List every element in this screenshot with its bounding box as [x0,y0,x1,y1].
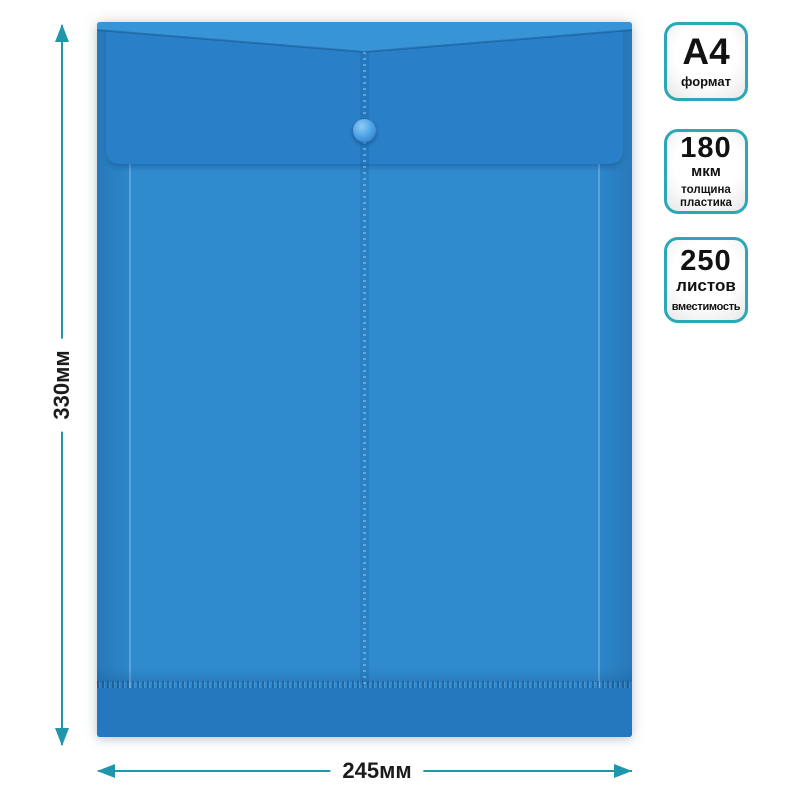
height-arrow-up-icon [55,24,69,42]
vertical-stitch-seam [360,52,369,685]
badge-thickness-caption-line1: толщина [681,184,731,197]
badge-capacity-unit: листов [676,276,736,296]
badge-format-value: А4 [682,33,729,70]
folder-envelope [97,22,632,737]
snap-button [352,118,377,143]
badge-capacity-value: 250 [680,247,731,276]
badge-thickness-unit: мкм [691,163,721,180]
badge-format: А4 формат [664,22,748,101]
height-dimension-label: 330мм [49,338,75,431]
badge-thickness-value: 180 [680,134,731,163]
width-dimension-label: 245мм [330,758,423,784]
folder-bottom-band [97,688,632,737]
flap-fold-seam [97,22,632,56]
height-arrow-down-icon [55,728,69,746]
width-arrow-right-icon [614,764,632,778]
badge-thickness: 180 мкм толщина пластика [664,129,748,214]
badge-format-caption: формат [681,75,731,89]
product-image: 330мм 245мм А4 формат 180 мкм толщина пл… [0,0,800,800]
badge-capacity-caption: вместимость [672,301,741,313]
width-arrow-left-icon [97,764,115,778]
badge-thickness-caption-line2: пластика [680,197,732,210]
badge-capacity: 250 листов вместимость [664,237,748,323]
